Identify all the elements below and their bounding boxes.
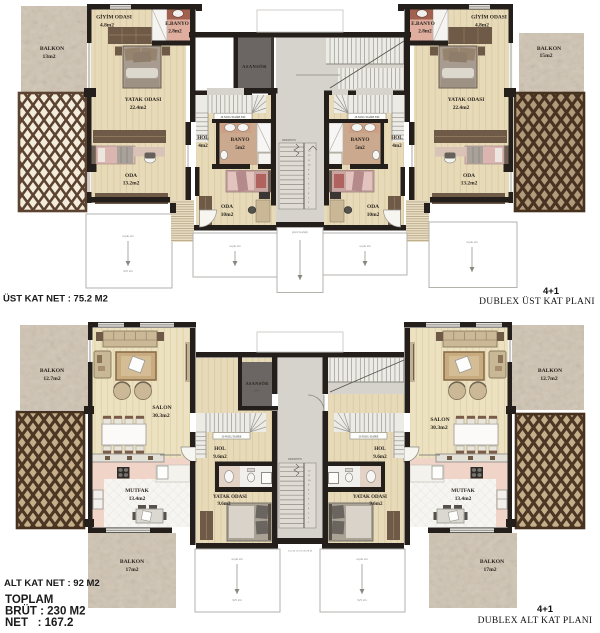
svg-text:YATAK ODASI: YATAK ODASI <box>353 495 387 500</box>
svg-text:DUBLEX ALT KAT PLANI: DUBLEX ALT KAT PLANI <box>478 616 593 626</box>
svg-text:BALKON: BALKON <box>538 368 562 374</box>
svg-text:30.3m2: 30.3m2 <box>430 425 447 431</box>
svg-text:BRÜT : 230 M2: BRÜT : 230 M2 <box>5 605 86 618</box>
svg-text:HOL: HOL <box>391 135 403 141</box>
svg-text:22.4m2: 22.4m2 <box>130 105 147 111</box>
svg-text:4.8m2: 4.8m2 <box>100 23 114 29</box>
svg-text:TOPLAM: TOPLAM <box>5 594 53 606</box>
svg-text:26 NOLU DAİRE EKİ: 26 NOLU DAİRE EKİ <box>355 116 380 119</box>
svg-text:saçak altı: saçak altı <box>359 244 370 248</box>
svg-text:SAÇAK ALTI SAHANLIK: SAÇAK ALTI SAHANLIK <box>288 550 313 553</box>
svg-text:saçak altı: saçak altı <box>356 557 367 561</box>
svg-text:925 altı: 925 altı <box>232 598 241 602</box>
svg-text:26 NOLU DAİRE EKİ: 26 NOLU DAİRE EKİ <box>221 116 246 119</box>
svg-text:BALKON: BALKON <box>120 559 144 565</box>
svg-text:17m2: 17m2 <box>125 567 138 573</box>
svg-text:9.6m2: 9.6m2 <box>213 454 227 460</box>
svg-text:SALON: SALON <box>430 417 449 423</box>
svg-text:BANYO: BANYO <box>351 137 370 143</box>
svg-text:12.7m2: 12.7m2 <box>540 376 557 382</box>
svg-text:20 NOLU DAİRE: 20 NOLU DAİRE <box>359 435 379 438</box>
svg-text:YATAK ODASI: YATAK ODASI <box>125 97 162 103</box>
svg-text:925 altı: 925 altı <box>123 269 132 273</box>
svg-text:13m2: 13m2 <box>42 54 55 60</box>
svg-text:BALKON: BALKON <box>40 46 64 52</box>
svg-text:GİYİM ODASI: GİYİM ODASI <box>96 14 132 21</box>
svg-text:BANYO: BANYO <box>231 137 250 143</box>
svg-text:MERDİVEN: MERDİVEN <box>282 139 296 142</box>
svg-text:13.2m2: 13.2m2 <box>461 181 478 187</box>
svg-text:HOL: HOL <box>197 135 209 141</box>
svg-text:4+1: 4+1 <box>543 286 560 297</box>
svg-text:E.BANYO: E.BANYO <box>165 21 189 27</box>
svg-text:HOL: HOL <box>374 446 386 452</box>
svg-text:galeri: galeri <box>254 389 260 392</box>
svg-text:4m2: 4m2 <box>198 143 208 149</box>
svg-text:5m2: 5m2 <box>355 145 365 151</box>
svg-text:9.6m2: 9.6m2 <box>373 454 387 460</box>
svg-text:MERDİVEN: MERDİVEN <box>288 458 302 461</box>
svg-text:15m2: 15m2 <box>539 53 552 59</box>
svg-text:DUBLEX ÜST KAT PLANI: DUBLEX ÜST KAT PLANI <box>479 295 595 307</box>
svg-text:GİYİM ODASI: GİYİM ODASI <box>471 14 507 21</box>
svg-text:saçak altı: saçak altı <box>231 557 242 561</box>
svg-text:BALKON: BALKON <box>480 559 504 565</box>
svg-text:13.2m2: 13.2m2 <box>123 181 140 187</box>
svg-text:10m2: 10m2 <box>367 212 380 218</box>
svg-text:YATAK ODASI: YATAK ODASI <box>448 97 485 103</box>
svg-text:30.3m2: 30.3m2 <box>152 413 169 419</box>
svg-text:2.8m2: 2.8m2 <box>168 29 182 35</box>
svg-text:ODA: ODA <box>367 204 379 210</box>
svg-text:ÜST KAT NET : 75.2 M2: ÜST KAT NET : 75.2 M2 <box>3 294 108 305</box>
svg-text:5m2: 5m2 <box>235 145 245 151</box>
svg-text:17m2: 17m2 <box>483 567 496 573</box>
svg-text:BALKON: BALKON <box>40 368 64 374</box>
svg-text:ODA: ODA <box>463 173 475 179</box>
svg-text:20 NOLU DAİRE: 20 NOLU DAİRE <box>222 435 242 438</box>
svg-text:22.4m2: 22.4m2 <box>453 105 470 111</box>
svg-text:2.8m2: 2.8m2 <box>418 29 432 35</box>
svg-text:E.BANYO: E.BANYO <box>411 21 435 27</box>
svg-text:MUTFAK: MUTFAK <box>451 488 475 494</box>
svg-text:galeri boşluğu: galeri boşluğu <box>292 231 309 234</box>
svg-text:12.7m2: 12.7m2 <box>43 376 60 382</box>
svg-text:ASANSÖR: ASANSÖR <box>245 381 269 386</box>
svg-text:BALKON: BALKON <box>537 46 561 52</box>
svg-text:saçak altı: saçak altı <box>466 240 477 244</box>
svg-text:YATAK ODASI: YATAK ODASI <box>213 495 247 500</box>
svg-text:ASANSÖR: ASANSÖR <box>242 64 267 69</box>
svg-text:ODA: ODA <box>125 173 137 179</box>
svg-text:925 altı: 925 altı <box>357 598 366 602</box>
svg-text:saçak altı: saçak altı <box>229 244 240 248</box>
svg-text:4.8m2: 4.8m2 <box>475 23 489 29</box>
svg-text:ALT KAT NET : 92 M2: ALT KAT NET : 92 M2 <box>4 578 100 589</box>
svg-text:NET : 167.2: NET : 167.2 <box>5 617 73 629</box>
svg-text:saçak altı: saçak altı <box>122 234 133 238</box>
svg-text:4+1: 4+1 <box>537 604 554 615</box>
svg-text:13.4m2: 13.4m2 <box>455 496 472 502</box>
svg-text:4m2: 4m2 <box>392 143 402 149</box>
svg-text:MUTFAK: MUTFAK <box>125 488 149 494</box>
svg-text:10m2: 10m2 <box>221 212 234 218</box>
svg-text:HOL: HOL <box>214 446 226 452</box>
svg-text:9.6m2: 9.6m2 <box>370 502 383 507</box>
svg-text:SALON: SALON <box>152 405 171 411</box>
svg-text:9.6m2: 9.6m2 <box>218 502 231 507</box>
svg-text:13.4m2: 13.4m2 <box>129 496 146 502</box>
svg-text:ODA: ODA <box>221 204 233 210</box>
